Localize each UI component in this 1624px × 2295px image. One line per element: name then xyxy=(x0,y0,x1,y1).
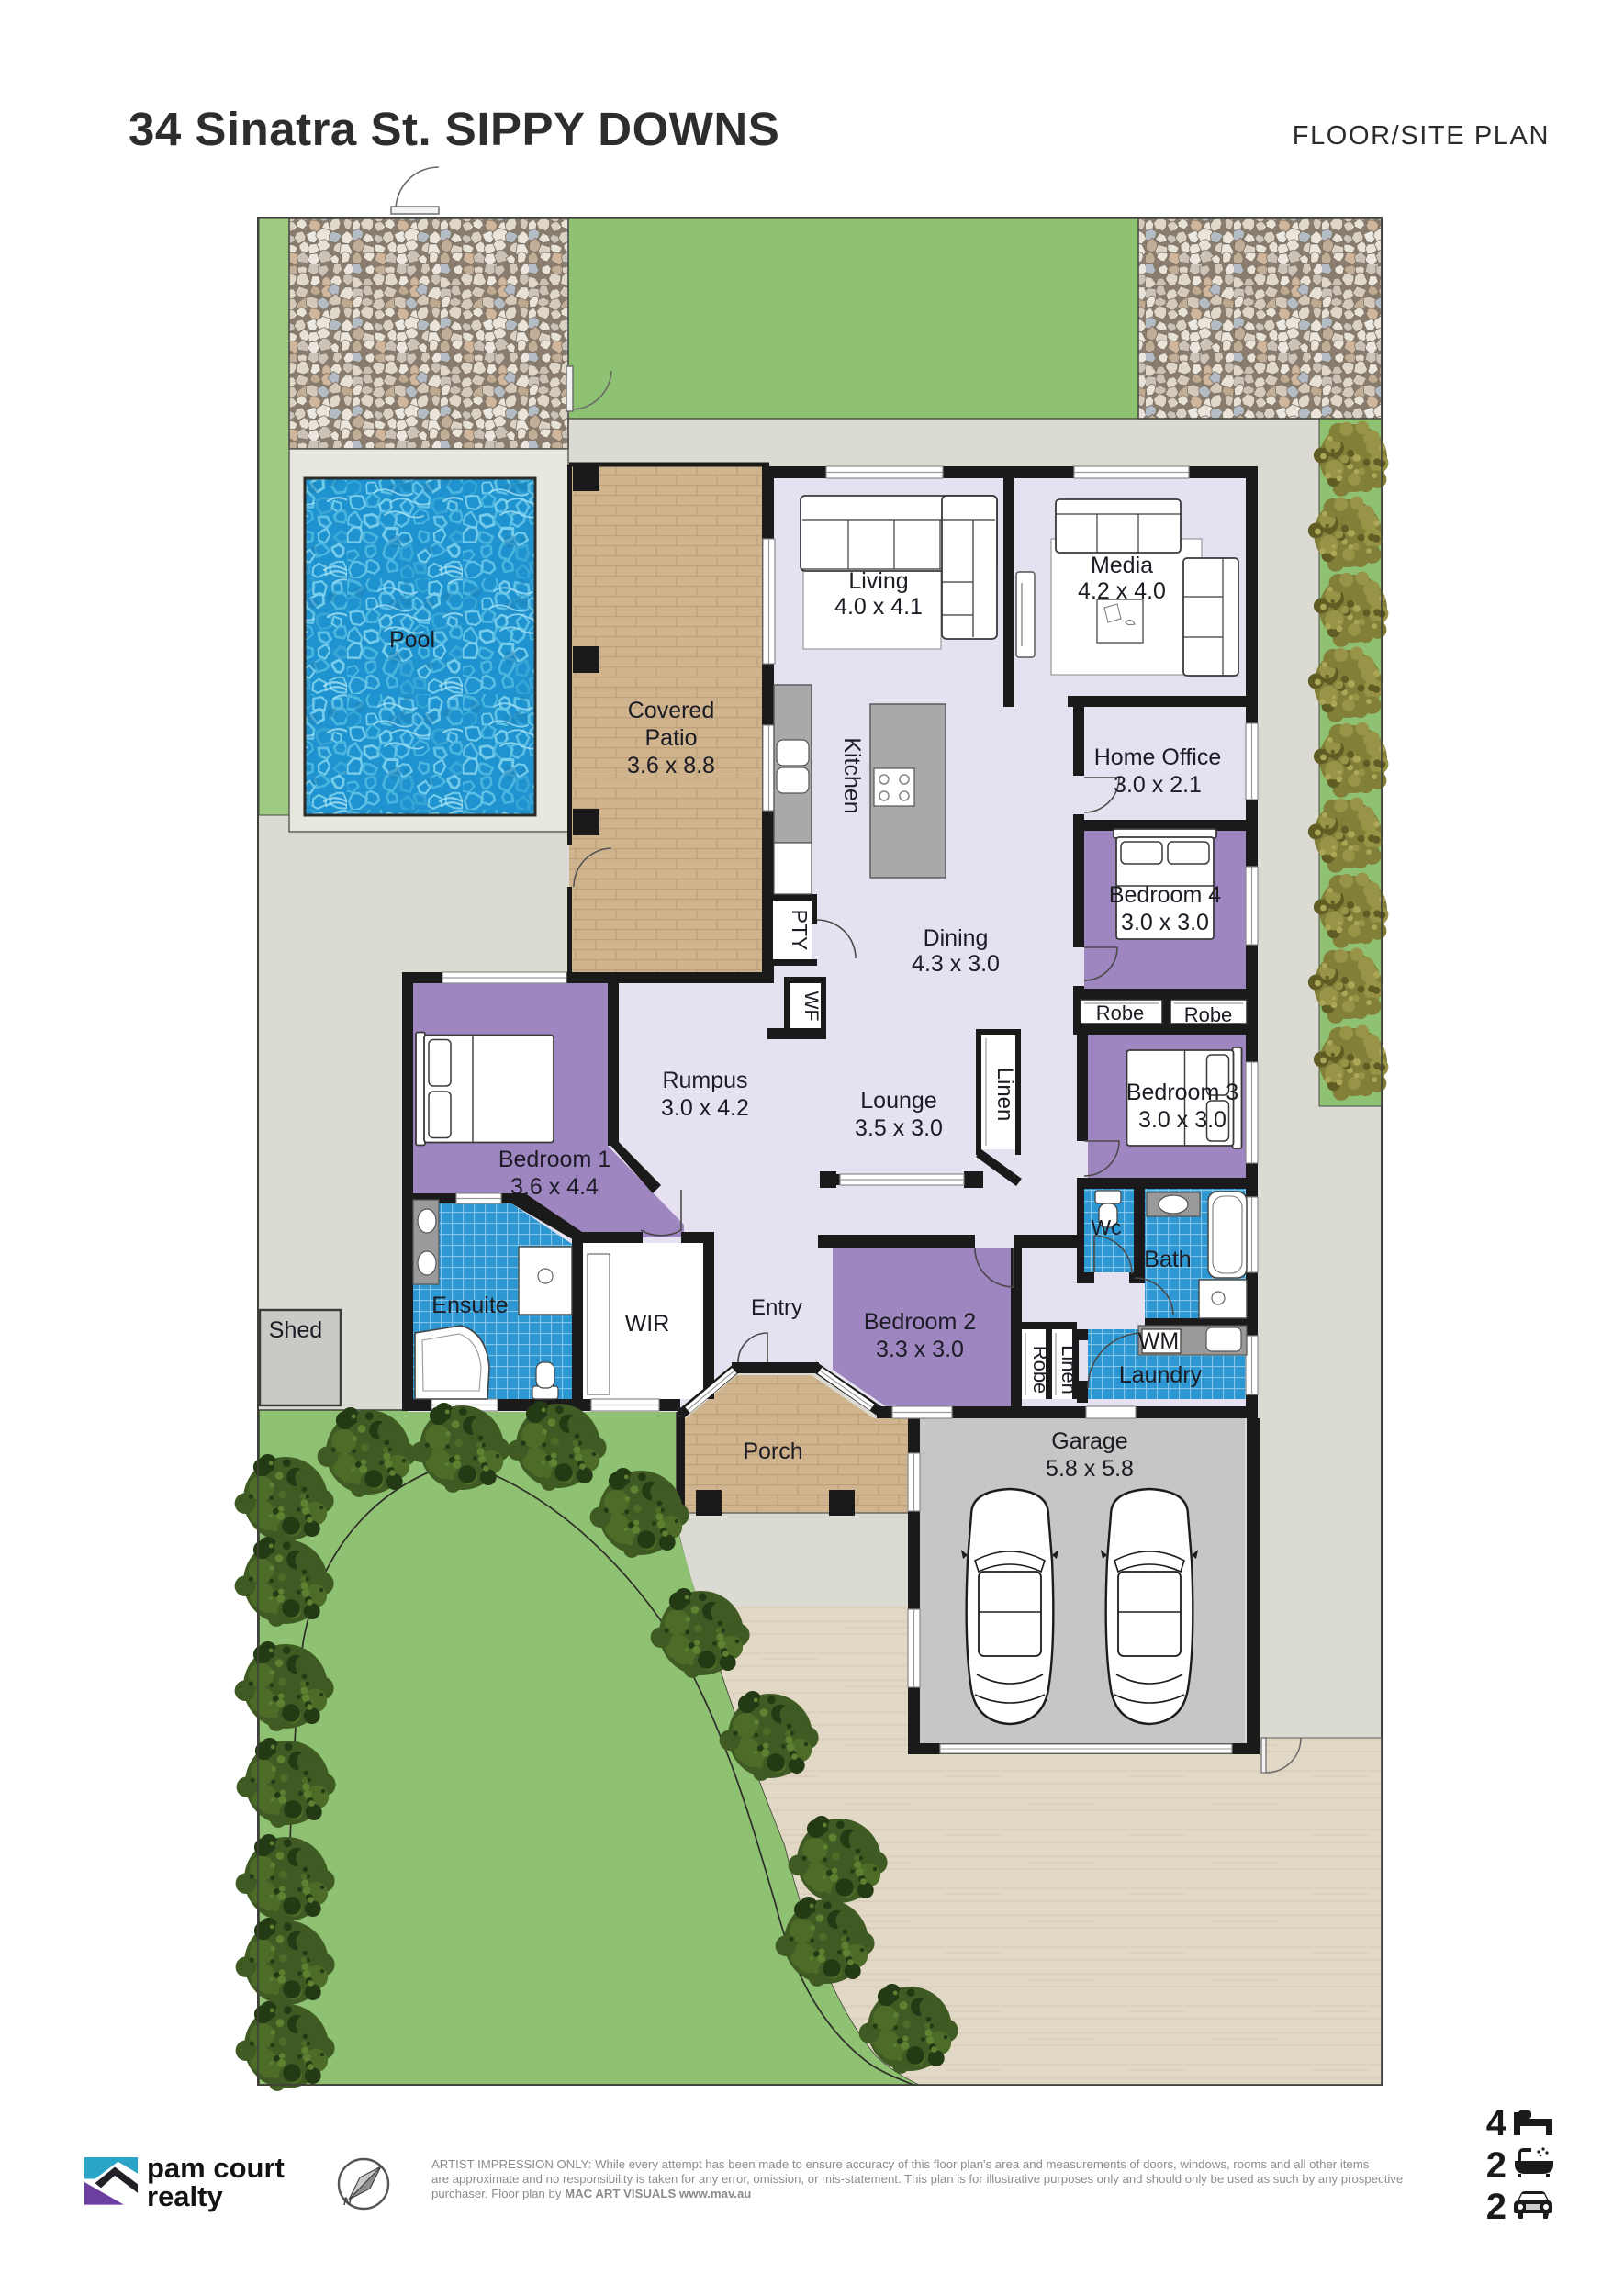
svg-text:Bath: Bath xyxy=(1144,1247,1191,1272)
svg-text:Laundry: Laundry xyxy=(1119,1362,1203,1388)
svg-text:Patio: Patio xyxy=(645,725,698,751)
svg-text:FLOOR/SITE PLAN: FLOOR/SITE PLAN xyxy=(1293,121,1550,151)
svg-text:4.0 x 4.1: 4.0 x 4.1 xyxy=(834,594,923,620)
svg-text:WIR: WIR xyxy=(625,1311,670,1337)
svg-text:Living: Living xyxy=(848,568,908,594)
svg-text:purchaser. Floor plan by MAC A: purchaser. Floor plan by MAC ART VISUALS… xyxy=(431,2187,751,2200)
svg-text:3.0 x 3.0: 3.0 x 3.0 xyxy=(1121,910,1209,935)
svg-text:are approximate and no respons: are approximate and no responsibility is… xyxy=(431,2172,1403,2186)
svg-text:WM: WM xyxy=(1138,1328,1179,1354)
svg-text:Garage: Garage xyxy=(1051,1428,1127,1454)
svg-text:34 Sinatra St. SIPPY DOWNS: 34 Sinatra St. SIPPY DOWNS xyxy=(129,103,779,155)
svg-text:Bedroom 2: Bedroom 2 xyxy=(864,1309,976,1335)
svg-text:PTY: PTY xyxy=(788,910,812,951)
svg-text:4.2 x 4.0: 4.2 x 4.0 xyxy=(1078,578,1166,604)
svg-text:Pool: Pool xyxy=(389,627,435,653)
svg-text:Shed: Shed xyxy=(269,1317,322,1343)
svg-text:Robe: Robe xyxy=(1184,1003,1233,1026)
svg-text:Robe: Robe xyxy=(1029,1346,1052,1394)
svg-text:Covered: Covered xyxy=(628,698,715,723)
svg-text:2: 2 xyxy=(1486,2145,1506,2186)
svg-text:Rumpus: Rumpus xyxy=(662,1068,747,1093)
svg-text:ARTIST IMPRESSION ONLY: While: ARTIST IMPRESSION ONLY: While every atte… xyxy=(431,2157,1370,2171)
svg-text:Lounge: Lounge xyxy=(860,1088,936,1114)
svg-text:realty: realty xyxy=(147,2180,223,2212)
svg-text:WF: WF xyxy=(801,991,822,1022)
svg-text:N: N xyxy=(343,2195,352,2208)
svg-text:3.3 x 3.0: 3.3 x 3.0 xyxy=(876,1337,964,1362)
svg-text:3.0 x 2.1: 3.0 x 2.1 xyxy=(1114,772,1202,798)
svg-text:2: 2 xyxy=(1486,2187,1506,2227)
svg-text:4: 4 xyxy=(1486,2103,1507,2144)
svg-text:Linen: Linen xyxy=(1058,1345,1081,1394)
svg-text:3.0 x 4.2: 3.0 x 4.2 xyxy=(661,1095,749,1121)
svg-text:pam court: pam court xyxy=(147,2152,285,2184)
svg-text:Kitchen: Kitchen xyxy=(839,737,865,813)
svg-text:Wc: Wc xyxy=(1091,1215,1121,1239)
svg-text:3.6 x 4.4: 3.6 x 4.4 xyxy=(510,1174,599,1200)
svg-text:3.6 x 8.8: 3.6 x 8.8 xyxy=(627,753,715,778)
svg-text:Media: Media xyxy=(1091,553,1153,578)
svg-text:3.5 x 3.0: 3.5 x 3.0 xyxy=(855,1115,943,1141)
svg-text:Dining: Dining xyxy=(924,925,989,951)
svg-text:Robe: Robe xyxy=(1096,1002,1145,1024)
svg-text:Ensuite: Ensuite xyxy=(431,1293,508,1318)
svg-text:Bedroom 1: Bedroom 1 xyxy=(498,1147,610,1172)
svg-text:3.0 x 3.0: 3.0 x 3.0 xyxy=(1138,1107,1226,1133)
svg-text:Bedroom 3: Bedroom 3 xyxy=(1126,1080,1238,1105)
svg-text:4.3 x 3.0: 4.3 x 3.0 xyxy=(912,951,1000,977)
svg-text:5.8 x 5.8: 5.8 x 5.8 xyxy=(1046,1456,1134,1482)
svg-text:Home Office: Home Office xyxy=(1094,744,1221,770)
svg-text:Entry: Entry xyxy=(751,1295,802,1320)
svg-text:Porch: Porch xyxy=(743,1439,802,1464)
svg-text:Bedroom 4: Bedroom 4 xyxy=(1109,882,1221,908)
svg-text:Linen: Linen xyxy=(992,1068,1017,1122)
